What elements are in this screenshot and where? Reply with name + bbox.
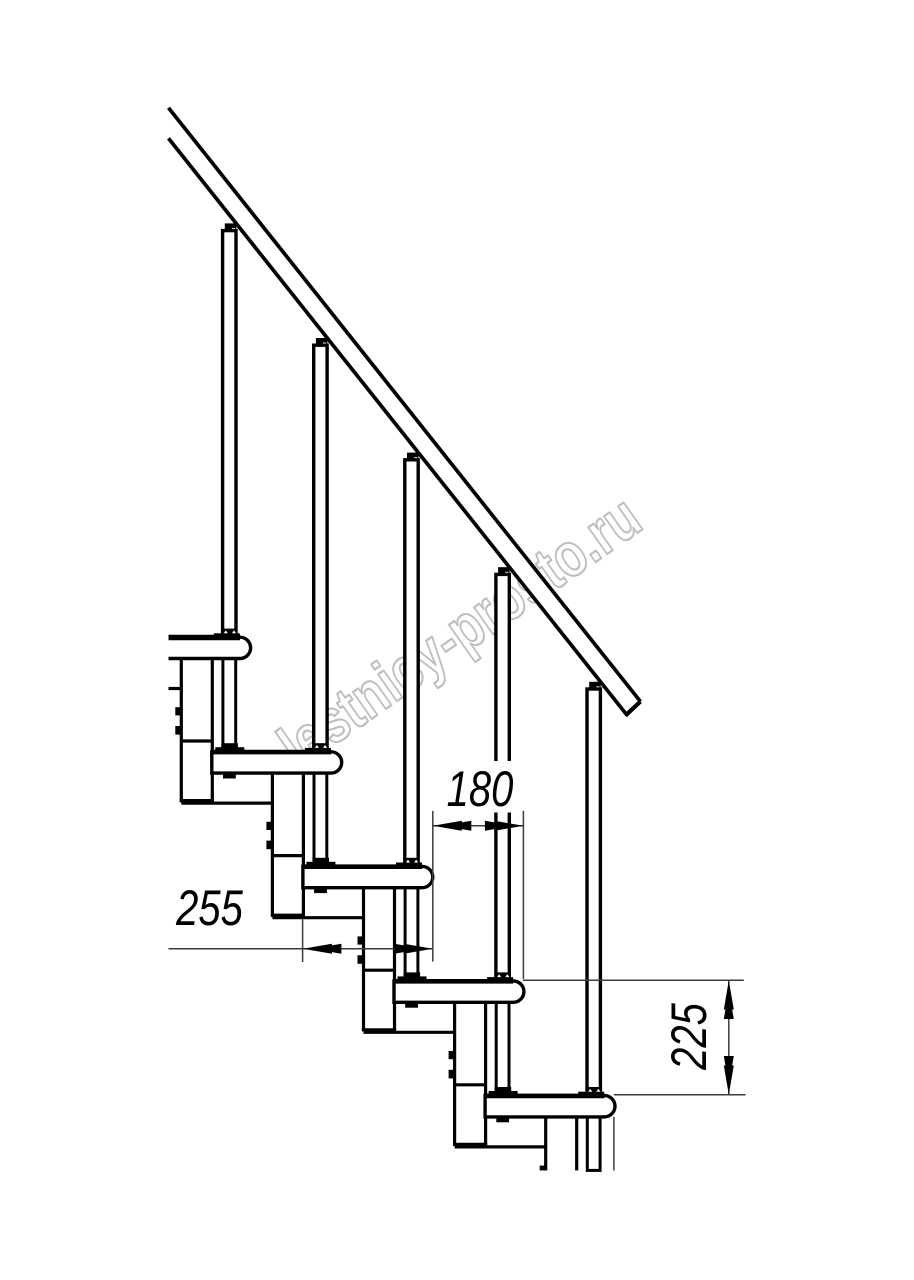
svg-text:225: 225 [661,1002,717,1070]
svg-text:255: 255 [175,880,243,936]
svg-text:180: 180 [447,761,514,817]
